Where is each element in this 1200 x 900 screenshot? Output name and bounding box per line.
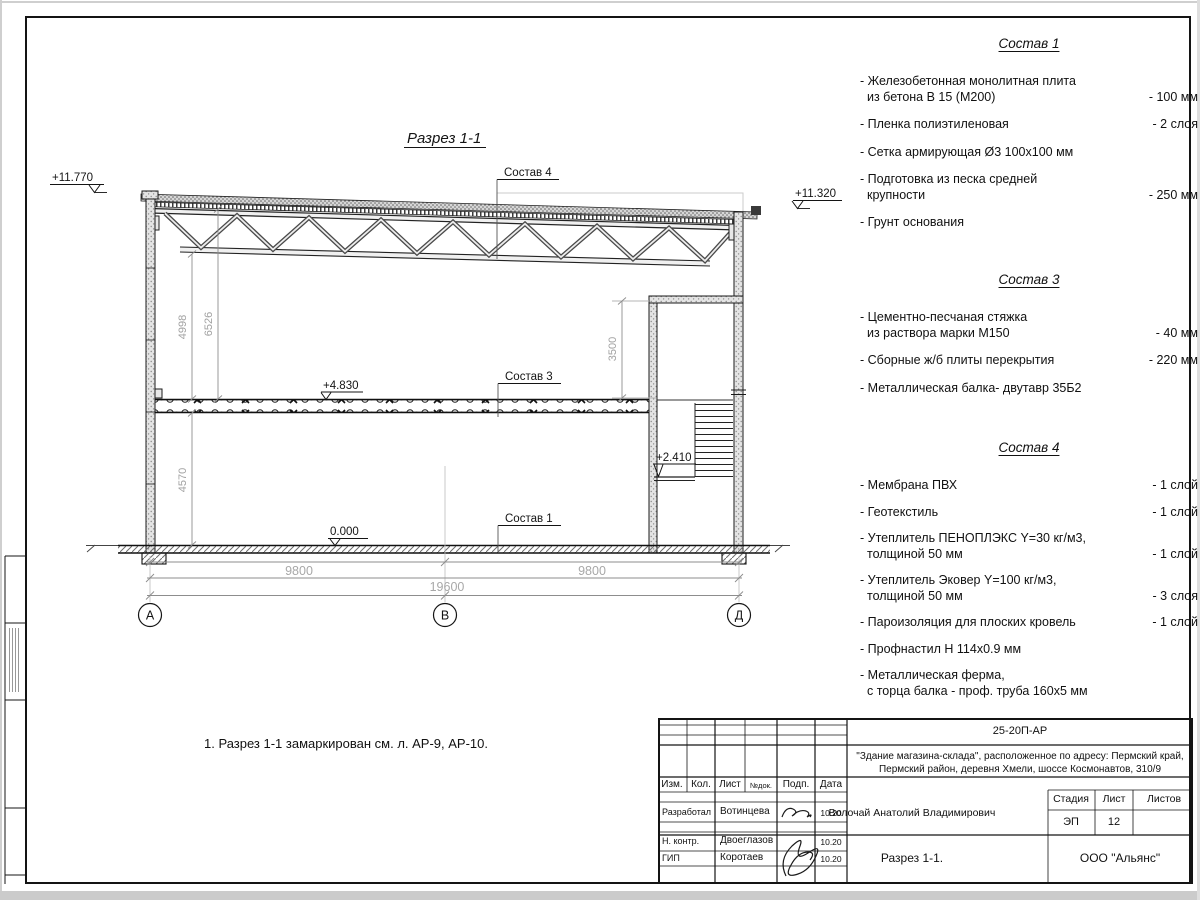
sheets-label: Листов [1147,793,1181,805]
stair-room-top-wall [649,296,743,303]
material-thickness: - 1 слой [1152,615,1198,631]
dim-4570: 4570 [177,468,189,492]
stair-room-wall [649,296,657,553]
material-thickness: - 2 слоя [1153,117,1198,133]
material-item: - Цементно-песчаная стяжкаиз раствора ма… [860,310,1198,341]
material-text: - Утеплитель ПЕНОПЛЭКС Y=30 кг/м3,толщин… [860,531,1086,562]
material-thickness: - 250 мм [1149,188,1198,204]
material-item: - Пленка полиэтиленовая- 2 слоя [860,117,1198,133]
material-item: - Металлическая балка- двутавр 35Б2 [860,381,1198,397]
axis-label-d: Д [735,609,744,623]
material-text: - Подготовка из песка среднейкрупности [860,172,1037,203]
organization: ООО "Альянс" [1080,851,1160,865]
sheet-label: Лист [1103,793,1126,805]
col-kol: Кол. [691,779,711,790]
chief-name: Волочай Анатолий Владимирович [829,807,996,819]
elevation-value: +4.830 [323,380,359,392]
material-text: - Пленка полиэтиленовая [860,117,1009,133]
elevation-value: +11.320 [795,188,836,200]
row-name: Двоеглазов [720,835,773,846]
col-izm: Изм. [661,779,682,790]
sheet-title: Разрез 1-1. [881,851,943,865]
dim-span-right: 9800 [578,564,606,578]
col-data: Дата [820,779,842,790]
section-heading: Состав 3 [860,272,1198,287]
walls [142,191,746,553]
elevation-value: +11.770 [52,172,93,184]
row-name: Вотинцева [720,806,770,817]
col-podp: Подп. [783,779,810,790]
material-item: - Мембрана ПВХ- 1 слой [860,478,1198,494]
axis-label-a: А [146,609,155,623]
dim-6526: 6526 [203,312,215,336]
row-role: ГИП [662,853,680,863]
material-thickness: - 100 мм [1149,90,1198,106]
elevation-ground: 0.000 [328,526,368,546]
left-wall-cap [142,191,158,199]
material-item: - Железобетонная монолитная плитаиз бето… [860,74,1198,105]
dim-3500: 3500 [607,337,619,361]
sheet-value: 12 [1108,816,1120,828]
sostav-1-section: Состав 1 - Железобетонная монолитная пли… [860,36,1198,243]
dim-4998: 4998 [177,315,189,339]
material-text: - Геотекстиль [860,505,938,521]
project-name-line2: Пермский район, деревня Хмели, шоссе Кос… [879,764,1161,775]
col-ndoc: №док. [750,781,772,790]
material-thickness: - 1 слой [1152,547,1198,563]
material-text: - Металлическая ферма,с торца балка - пр… [860,668,1088,699]
material-item: - Пароизоляция для плоских кровель- 1 сл… [860,615,1198,631]
section-heading: Состав 4 [860,440,1198,455]
material-thickness: - 3 слоя [1153,589,1198,605]
material-text: - Сетка армирующая Ø3 100х100 мм [860,145,1073,161]
signature-dvoeglazov-korotaev [783,841,818,877]
material-item: - Сборные ж/б плиты перекрытия- 220 мм [860,353,1198,369]
slab-corbel [155,389,162,398]
material-thickness: - 220 мм [1149,353,1198,369]
material-thickness: - 1 слой [1152,478,1198,494]
material-item: - Подготовка из песка среднейкрупности- … [860,172,1198,203]
section-heading: Состав 1 [860,36,1198,51]
stage-value: ЭП [1063,816,1079,828]
stage-label: Стадия [1053,793,1089,805]
dim-span-left: 9800 [285,564,313,578]
signature-votintseva [782,808,811,817]
elevation-landing: +2.410 [653,452,696,477]
page-edge-bottom [0,891,1200,900]
material-text: - Цементно-песчаная стяжкаиз раствора ма… [860,310,1027,341]
material-text: - Грунт основания [860,215,964,231]
material-item: - Геотекстиль- 1 слой [860,505,1198,521]
leader-sostav4-label: Состав 4 [504,167,552,179]
elevation-roof-left: +11.770 [50,172,107,193]
doc-number: 25-20П-АР [993,725,1047,737]
dim-total: 19600 [430,580,465,594]
material-item: - Сетка армирующая Ø3 100х100 мм [860,145,1198,161]
material-text: - Пароизоляция для плоских кровель [860,615,1076,631]
material-text: - Металлическая балка- двутавр 35Б2 [860,381,1082,397]
drawing-title: Разрез 1-1 [404,130,486,148]
staircase [654,403,733,481]
material-text: - Мембрана ПВХ [860,478,957,494]
title-block: Изм. Кол. Лист №док. Подп. Дата Разработ… [658,718,1193,884]
col-list: Лист [719,779,741,790]
materials-panel: Состав 1 - Железобетонная монолитная пли… [860,0,1200,716]
material-text: - Профнастил Н 114х0.9 мм [860,642,1021,658]
material-text: - Утеплитель Эковер Y=100 кг/м3,толщиной… [860,573,1056,604]
material-item: - Утеплитель Эковер Y=100 кг/м3,толщиной… [860,573,1198,604]
elevation-roof-right: +11.320 [792,188,842,209]
section-title-text: Разрез 1-1 [407,130,481,147]
elevation-value: 0.000 [330,526,359,538]
leader-sostav3-label: Состав 3 [505,371,553,383]
row-role: Н. контр. [662,836,699,846]
axis-label-b: В [441,609,449,623]
material-thickness: - 1 слой [1152,505,1198,521]
material-thickness: - 40 мм [1156,326,1198,342]
row-date: 10.20 [820,854,841,864]
drawing-note: 1. Разрез 1-1 замаркирован см. л. АР-9, … [204,736,488,751]
material-item: - Профнастил Н 114х0.9 мм [860,642,1198,658]
floor-slab [155,399,733,413]
elevation-floor2: +4.830 [321,380,363,400]
sostav-4-section: Состав 4 - Мембрана ПВХ- 1 слой- Геотекс… [860,440,1198,710]
material-item: - Утеплитель ПЕНОПЛЭКС Y=30 кг/м3,толщин… [860,531,1198,562]
section-drawing: Разрез 1-1 [0,0,860,680]
material-text: - Сборные ж/б плиты перекрытия [860,353,1054,369]
material-item: - Грунт основания [860,215,1198,231]
row-date: 10.20 [820,837,841,847]
elevation-value: +2.410 [656,452,692,464]
ground [86,545,790,564]
material-item: - Металлическая ферма,с торца балка - пр… [860,668,1198,699]
project-name-line1: "Здание магазина-склада", расположенное … [856,751,1183,762]
row-role: Разработал [662,807,711,817]
leader-sostav1-label: Состав 1 [505,513,553,525]
right-wall [734,212,743,553]
row-name: Коротаев [720,852,763,863]
material-text: - Железобетонная монолитная плитаиз бето… [860,74,1076,105]
sostav-3-section: Состав 3 - Цементно-песчаная стяжкаиз ра… [860,272,1198,408]
left-wall [146,196,155,553]
